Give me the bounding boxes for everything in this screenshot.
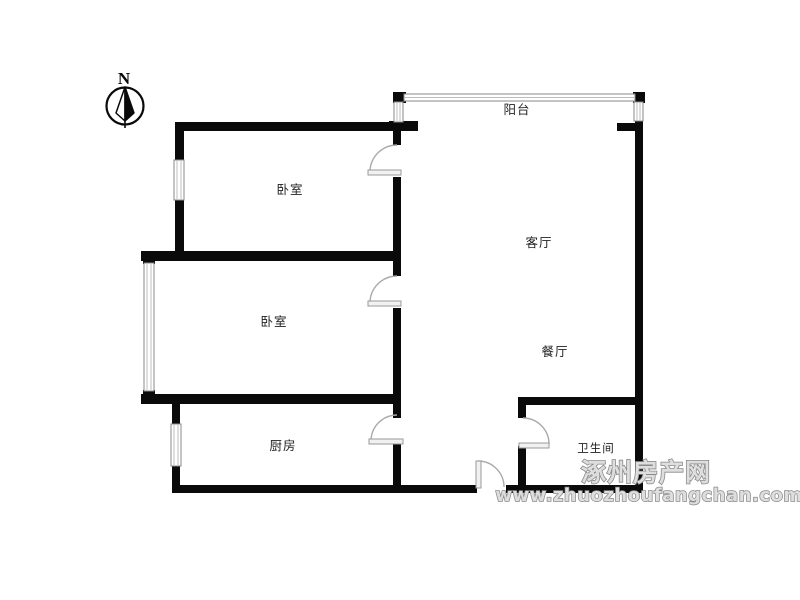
floor-plan-page: N [0, 0, 800, 600]
window [174, 160, 184, 200]
door-leaf [369, 439, 403, 444]
door-leaf [476, 461, 481, 488]
door-leaf [519, 443, 549, 448]
door [369, 415, 403, 444]
room-label-living: 客厅 [525, 235, 552, 250]
window [394, 102, 403, 122]
wall-segment [518, 446, 526, 486]
room-label-kitchen: 厨房 [269, 438, 296, 453]
wall-segment [172, 398, 180, 426]
window [404, 94, 635, 101]
wall-segment [518, 397, 526, 418]
door-arc [371, 415, 397, 441]
door [368, 276, 401, 306]
room-label-bathroom: 卫生间 [577, 441, 615, 455]
wall-segment [518, 397, 643, 405]
door-arc [478, 461, 504, 487]
wall-segment [635, 120, 643, 493]
wall-segment [141, 251, 401, 261]
door [476, 461, 504, 488]
wall-segment [175, 122, 418, 131]
window [634, 102, 643, 121]
door [368, 145, 401, 175]
compass: N [107, 69, 144, 128]
door-arc [370, 145, 397, 172]
door-arc [523, 418, 549, 444]
watermark-site-name: 涿州房产网 [581, 458, 711, 487]
walls [141, 92, 645, 493]
window [171, 424, 181, 466]
wall-segment [175, 199, 184, 257]
compass-needle-left-icon [116, 87, 125, 121]
watermark: 涿州房产网 www.zhuozhoufangchan.com [495, 458, 800, 506]
door [519, 418, 549, 448]
door-leaf [368, 170, 401, 175]
compass-needle-right-icon [125, 87, 134, 121]
compass-north-label: N [118, 69, 131, 88]
room-label-bedroom2: 卧室 [260, 314, 287, 329]
watermark-site-url: www.zhuozhoufangchan.com [495, 485, 800, 506]
wall-segment [175, 122, 184, 162]
room-label-balcony: 阳台 [503, 102, 530, 117]
floor-plan-canvas: N [0, 0, 800, 600]
room-label-bedroom1: 卧室 [276, 182, 303, 197]
door-leaf [368, 301, 401, 306]
door-arc [370, 276, 397, 303]
wall-segment [393, 177, 401, 276]
wall-segment [143, 251, 155, 264]
room-label-dining: 餐厅 [541, 344, 568, 359]
wall-segment [393, 308, 401, 418]
wall-segment [172, 485, 477, 493]
wall-segment [393, 444, 401, 493]
window [144, 263, 154, 391]
